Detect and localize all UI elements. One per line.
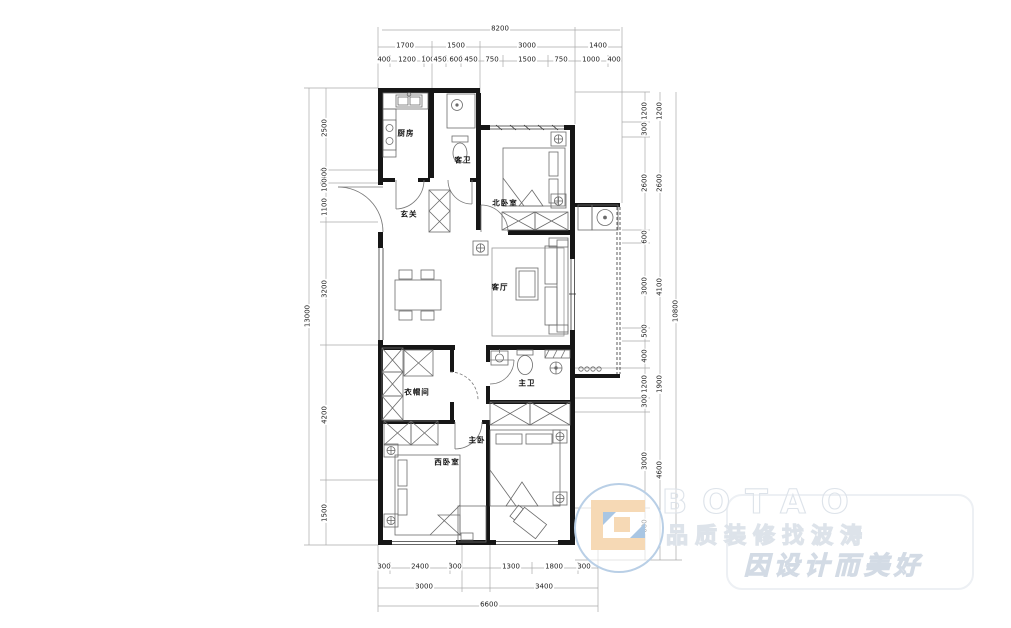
logo-shape (614, 517, 630, 532)
balcony-drain-icons (579, 367, 601, 371)
dim-label-left_details-6: 1500 (322, 503, 329, 523)
master-toilet-icon (517, 350, 533, 375)
north-wardrobe-icon (502, 212, 568, 230)
dim-label-bottom_details-4: 1800 (544, 564, 564, 571)
kitchen-sink-icon (396, 93, 422, 107)
dim-label-right_mid-4: 4600 (657, 460, 664, 480)
dim-label-top_groups-0: 1700 (395, 43, 415, 50)
furniture (382, 93, 618, 542)
dim-label-left_details-2: 100 (322, 177, 329, 192)
logo-shape (603, 538, 645, 550)
dim-label-bottom_details-5: 300 (576, 564, 591, 571)
cloakroom-door-arc (450, 372, 478, 400)
dim-label-top_details-9: 1000 (581, 57, 601, 64)
logo-shape (591, 500, 603, 550)
dim-label-bottom_details-3: 1300 (501, 564, 521, 571)
dining-table-icon (395, 270, 441, 320)
dim-label-right_mid-2: 4100 (657, 277, 664, 297)
dim-label-bottom_details-0: 300 (376, 564, 391, 571)
room-label-north-bedroom: 北卧室 (492, 198, 518, 209)
floor-plan-canvas: 厨房 客卫 北卧室 玄关 客厅 衣帽间 主卫 主卧 西卧室 8200170015… (0, 0, 1011, 628)
dim-label-bottom_details-2: 300 (447, 564, 462, 571)
dim-label-right_details-6: 400 (642, 348, 649, 363)
room-label-master-bedroom: 主卧 (469, 435, 486, 446)
master-wardrobe-icon (490, 402, 570, 425)
dim-label-right_details-4: 3000 (642, 276, 649, 296)
dim-label-right_mid-3: 1900 (657, 374, 664, 394)
dim-label-top_groups-1: 1500 (446, 43, 466, 50)
room-label-guest-bath: 客卫 (455, 155, 472, 166)
dim-label-left_details-5: 4200 (322, 405, 329, 425)
dim-label-top_details-8: 750 (553, 57, 568, 64)
north-bedroom-door-arc (481, 205, 508, 232)
guest-bath-door-arc (448, 180, 472, 204)
dim-label-right_details-3: 600 (642, 229, 649, 244)
dim-label-right_details-0: 1200 (642, 101, 649, 121)
dim-label-top_groups-2: 3000 (517, 43, 537, 50)
dim-label-right_details-1: 300 (642, 121, 649, 136)
dim-label-top_overall-0: 8200 (490, 26, 510, 33)
west-nightstand-lamp-icon (384, 444, 398, 527)
dim-label-left_details-3: 1100 (322, 197, 329, 217)
vestibule-cabinet-icon (458, 506, 486, 542)
stove-icon (383, 120, 396, 150)
walls (378, 88, 620, 545)
shaft-column (429, 190, 450, 232)
master-bath-sink-icon (491, 349, 508, 365)
dim-label-top_details-1: 1200 (397, 57, 417, 64)
dim-label-right_details-5: 500 (642, 323, 649, 338)
dim-label-top_details-3: 450 (432, 57, 447, 64)
sofa-icon (545, 238, 568, 334)
coffee-table-icon (516, 268, 538, 300)
dim-label-bottom_details-1: 2400 (410, 564, 430, 571)
entry-door-arc (338, 187, 383, 232)
dim-label-right_details-8: 300 (642, 393, 649, 408)
watermark-brand: BOTAO (662, 482, 864, 521)
washing-machine-icon (578, 205, 618, 230)
dim-label-top_details-6: 750 (484, 57, 499, 64)
kitchen-counter-icon (383, 93, 428, 157)
dim-label-right_details-2: 2600 (642, 173, 649, 193)
master-bed-icon (490, 430, 560, 506)
logo-shape (630, 523, 645, 538)
room-label-foyer: 玄关 (401, 209, 418, 220)
dim-label-top_details-0: 400 (376, 57, 391, 64)
room-label-living-room: 客厅 (492, 282, 509, 293)
living-lamp-icon (473, 241, 488, 255)
dim-label-right_overall-0: 10800 (673, 299, 680, 323)
kitchen-door-arc (396, 180, 424, 209)
dim-label-bottom_groups-0: 3000 (414, 584, 434, 591)
cloakroom-wardrobe-icon (382, 348, 433, 420)
dim-label-right_mid-1: 2600 (657, 173, 664, 193)
room-label-cloakroom: 衣帽间 (404, 387, 430, 398)
dim-label-top_details-4: 600 (448, 57, 463, 64)
master-shower-icon (545, 350, 570, 374)
west-wardrobe-icon (384, 421, 438, 445)
watermark-tagline2: 因设计而美好 (744, 546, 924, 582)
dim-label-top_groups-3: 1400 (588, 43, 608, 50)
room-label-west-bedroom: 西卧室 (434, 457, 460, 468)
lounge-chair-icon (509, 504, 547, 539)
dim-label-top_details-5: 450 (463, 57, 478, 64)
dim-label-bottom_groups-1: 3400 (534, 584, 554, 591)
dim-label-bottom_overall-0: 6600 (479, 602, 499, 609)
room-label-kitchen: 厨房 (398, 128, 415, 139)
dim-label-left_overall-0: 13000 (305, 304, 312, 328)
dim-label-right_mid-0: 1200 (657, 101, 664, 121)
master-bath-door-arc (490, 360, 514, 384)
dim-label-left_details-4: 3200 (322, 279, 329, 299)
shower-icon (447, 94, 475, 128)
dim-label-top_details-7: 1500 (517, 57, 537, 64)
doors (338, 180, 514, 449)
dim-label-right_details-7: 1200 (642, 374, 649, 394)
room-label-master-bath: 主卫 (519, 378, 536, 389)
dim-label-right_details-9: 3000 (642, 451, 649, 471)
north-nightstand-lamp-icon (551, 132, 566, 208)
watermark-logo (574, 483, 664, 573)
dim-label-top_details-10: 400 (606, 57, 621, 64)
dim-label-left_details-0: 2500 (322, 118, 329, 138)
